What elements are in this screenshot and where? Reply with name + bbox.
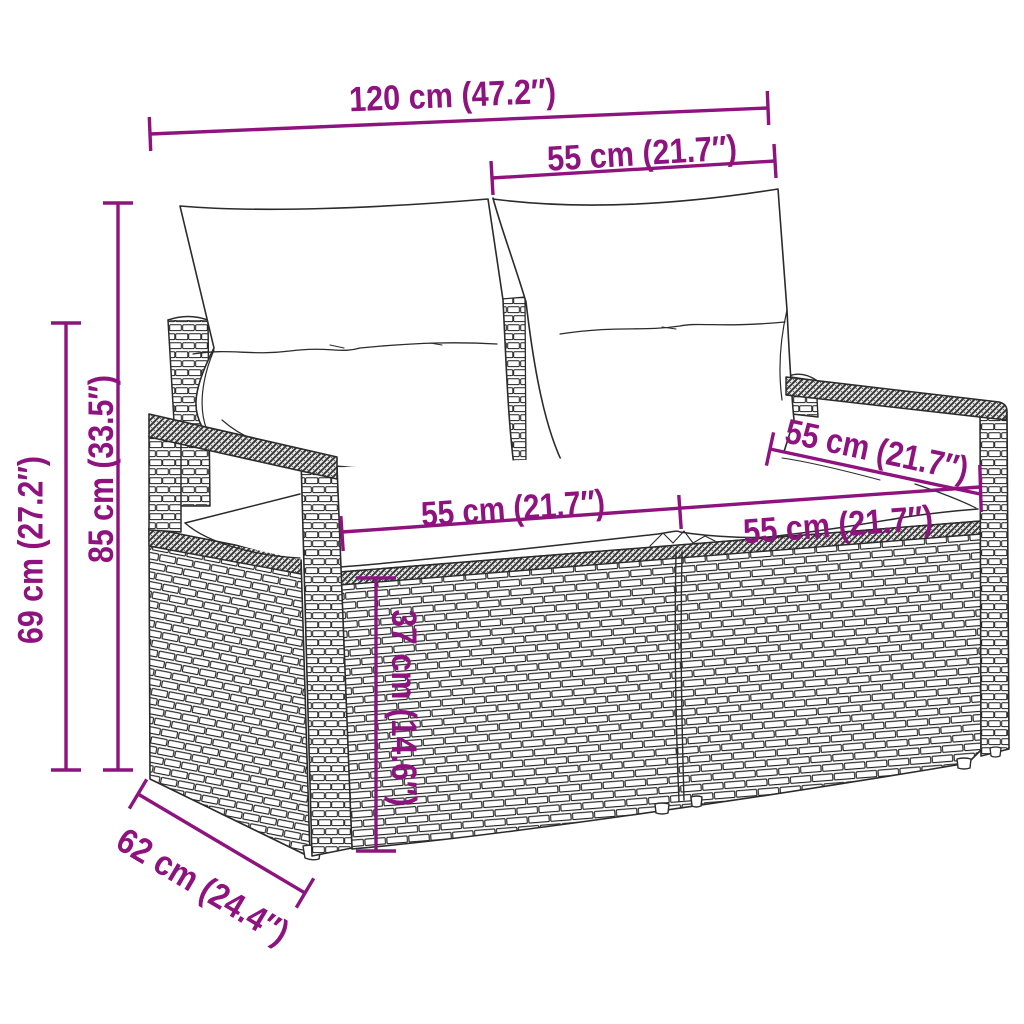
svg-text:85 cm (33.5″): 85 cm (33.5″)	[82, 375, 121, 563]
svg-text:69 cm (27.2″): 69 cm (27.2″)	[12, 456, 51, 644]
svg-text:37 cm (14.6″): 37 cm (14.6″)	[384, 610, 423, 807]
